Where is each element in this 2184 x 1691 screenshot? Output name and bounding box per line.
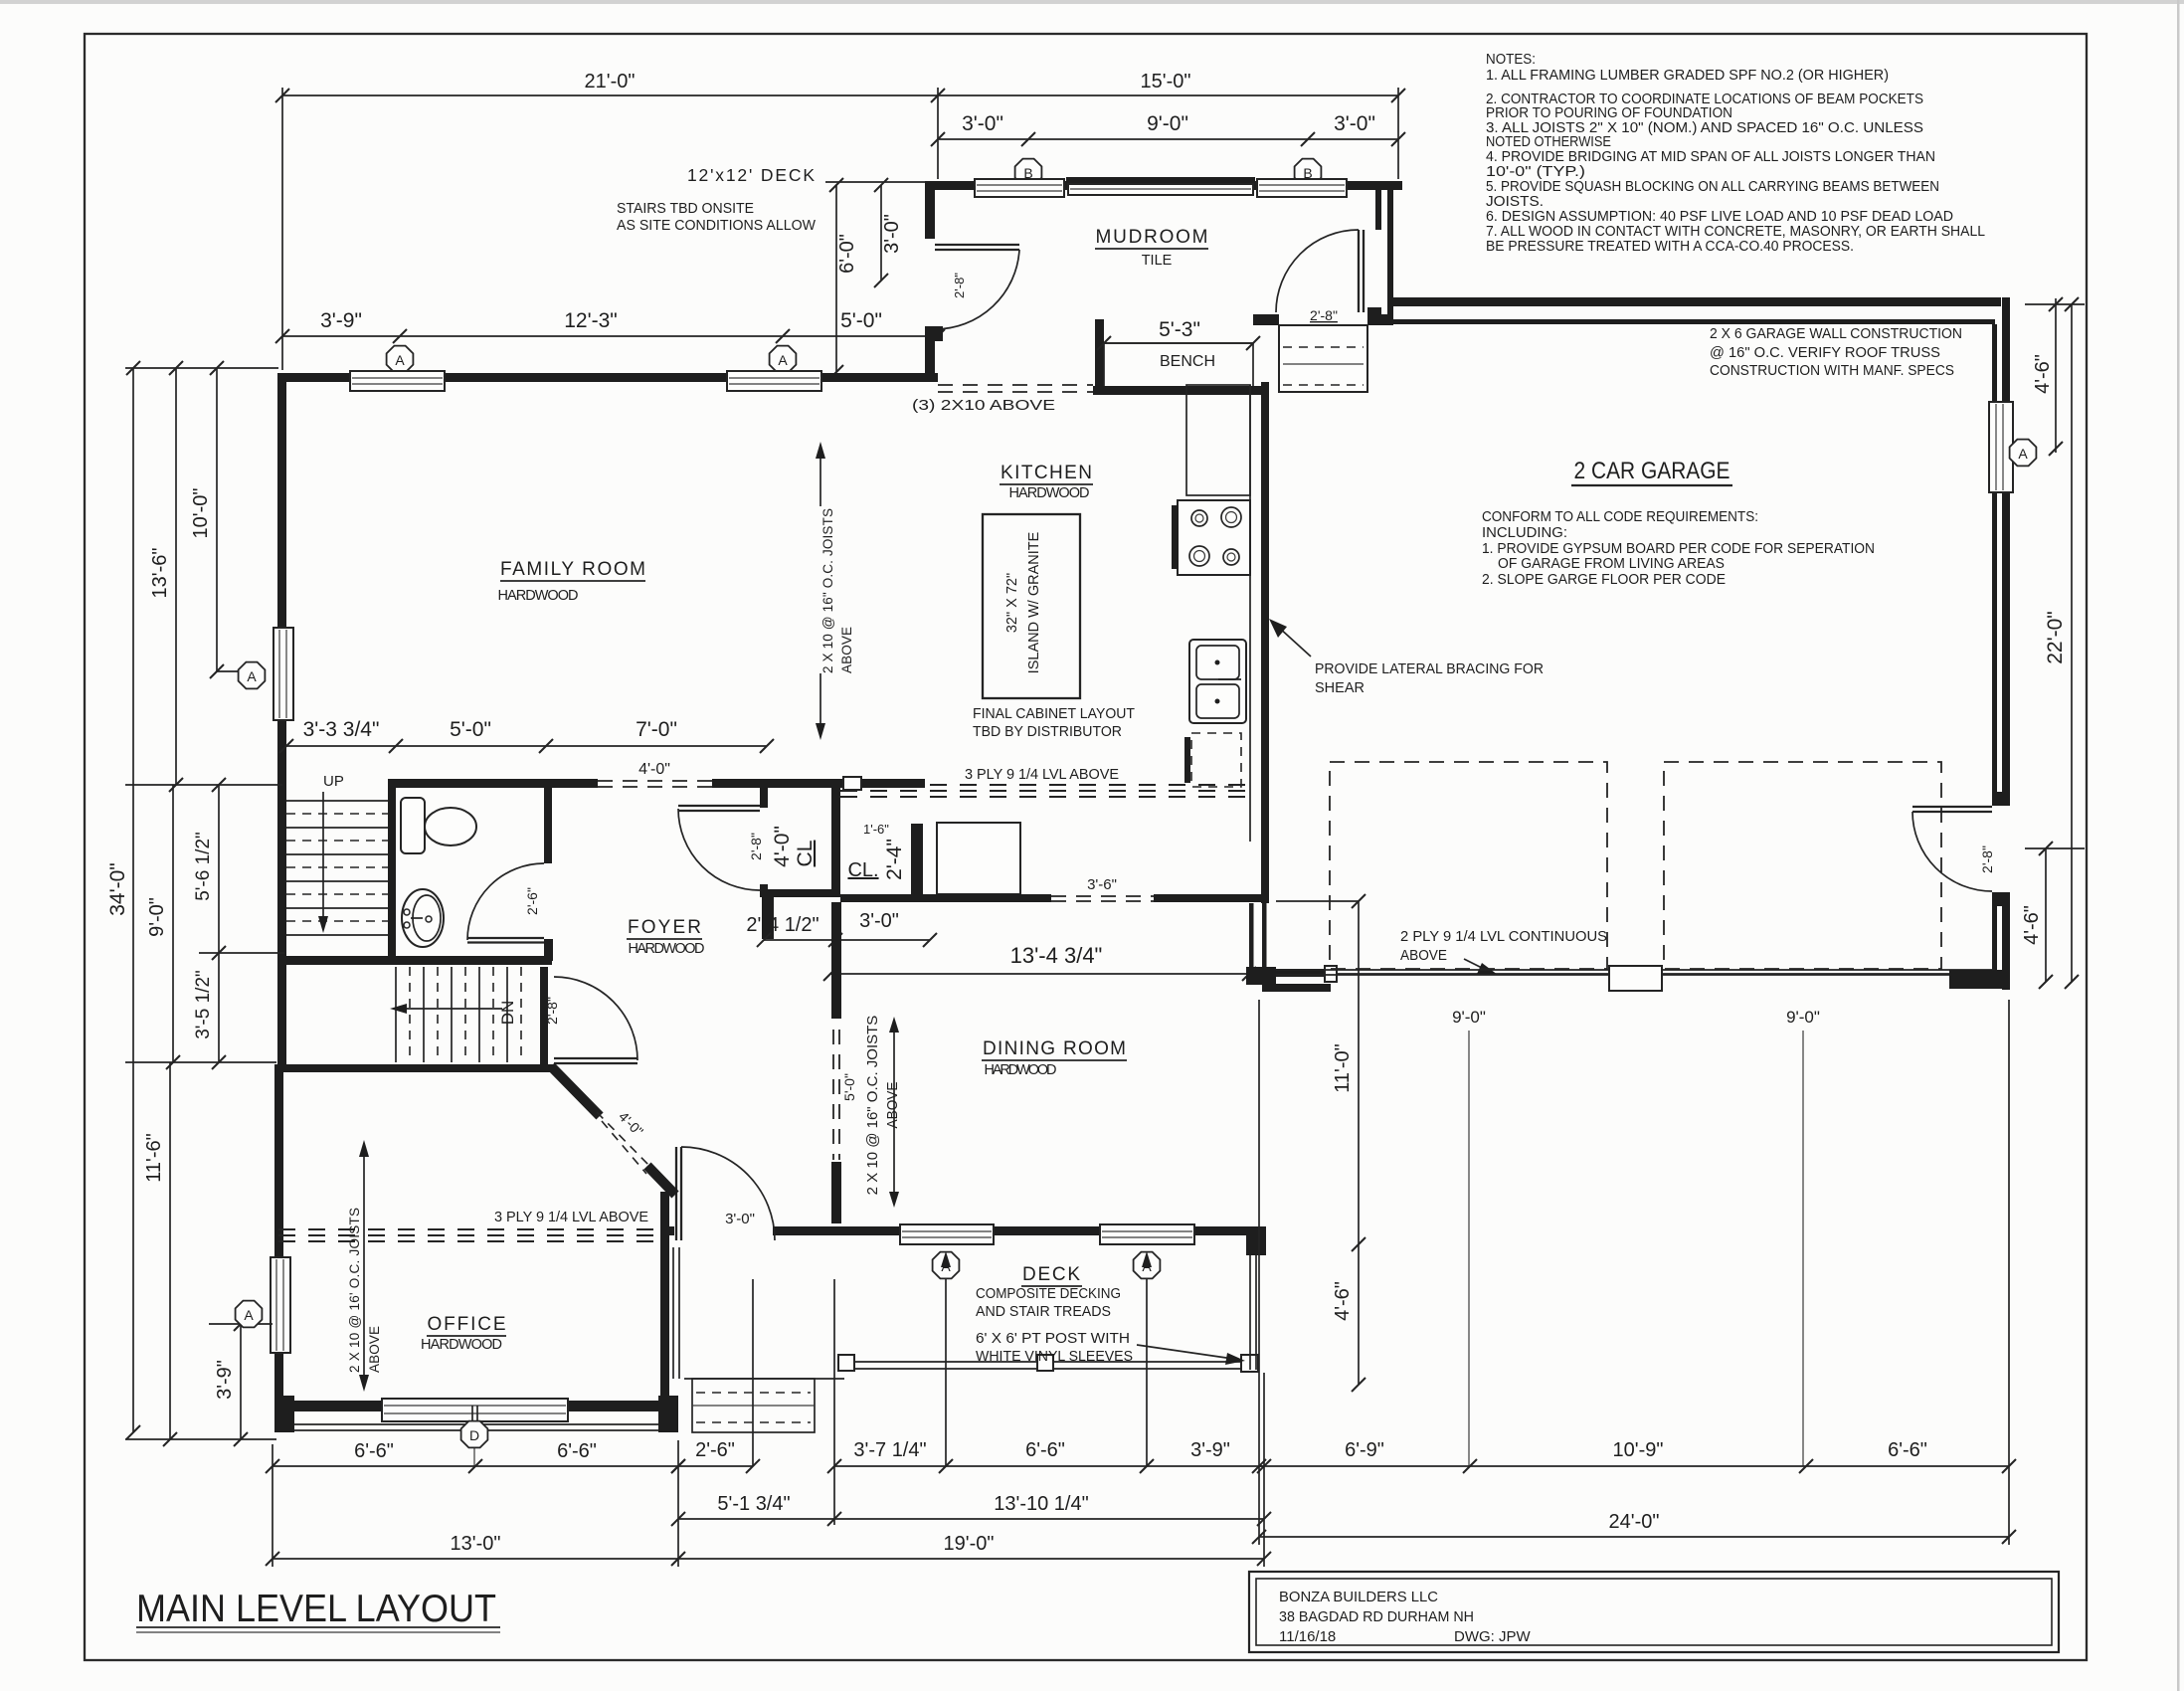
svg-text:13'-6": 13'-6" [149,548,171,599]
svg-text:OF GARAGE FROM LIVING AREAS: OF GARAGE FROM LIVING AREAS [1498,556,1725,572]
svg-text:3 PLY 9 1/4 LVL ABOVE: 3 PLY 9 1/4 LVL ABOVE [494,1210,648,1225]
svg-text:11'-0": 11'-0" [1332,1043,1354,1092]
svg-text:CONFORM TO ALL CODE REQUIREMEN: CONFORM TO ALL CODE REQUIREMENTS: [1482,509,1758,525]
svg-text:DINING ROOM: DINING ROOM [983,1038,1126,1059]
svg-text:DWG: JPW: DWG: JPW [1454,1628,1531,1645]
svg-text:KITCHEN: KITCHEN [1001,463,1092,483]
svg-text:9'-0": 9'-0" [1147,112,1188,135]
svg-text:A: A [2018,446,2028,462]
svg-text:10'-0" (TYP.): 10'-0" (TYP.) [1486,164,1585,180]
svg-text:A: A [778,352,788,368]
svg-text:TILE: TILE [1142,253,1173,269]
svg-text:HARDWOOD: HARDWOOD [1009,485,1090,501]
svg-text:32" X 72": 32" X 72" [1004,573,1020,633]
svg-text:BE PRESSURE TREATED WITH A CCA: BE PRESSURE TREATED WITH A CCA-CO.40 PRO… [1486,239,1854,255]
svg-text:BONZA BUILDERS LLC: BONZA BUILDERS LLC [1279,1589,1438,1605]
svg-text:2'-8": 2'-8" [1310,307,1338,323]
svg-text:6' X 6' PT POST WITH: 6' X 6' PT POST WITH [976,1331,1130,1347]
svg-text:5'-0": 5'-0" [841,1073,857,1101]
svg-text:AND STAIR TREADS: AND STAIR TREADS [976,1304,1111,1320]
svg-text:BENCH: BENCH [1160,353,1215,370]
svg-text:3'-9": 3'-9" [214,1360,236,1400]
svg-text:4'-0": 4'-0" [771,826,794,867]
svg-text:24'-0": 24'-0" [1609,1511,1660,1533]
svg-text:3 PLY 9 1/4 LVL ABOVE: 3 PLY 9 1/4 LVL ABOVE [965,767,1119,783]
svg-text:A: A [247,668,257,684]
svg-text:21'-0": 21'-0" [585,71,636,93]
svg-text:INCLUDING:: INCLUDING: [1482,525,1567,541]
svg-text:7. ALL WOOD IN CONTACT WITH CO: 7. ALL WOOD IN CONTACT WITH CONCRETE, MA… [1486,224,1985,240]
svg-text:ABOVE: ABOVE [839,627,854,673]
svg-text:34'-0": 34'-0" [106,862,129,916]
svg-text:2'-6": 2'-6" [524,887,540,915]
svg-text:2'-8": 2'-8" [1979,845,1995,873]
svg-text:OFFICE: OFFICE [428,1314,506,1335]
svg-text:WHITE VINYL SLEEVES: WHITE VINYL SLEEVES [976,1349,1133,1365]
svg-text:2 X 6 GARAGE WALL CONSTRUCTION: 2 X 6 GARAGE WALL CONSTRUCTION [1710,326,1962,342]
svg-text:@ 16" O.C. VERIFY ROOF TRUSS: @ 16" O.C. VERIFY ROOF TRUSS [1710,345,1940,361]
svg-text:12'x12' DECK: 12'x12' DECK [687,165,815,185]
svg-text:6'-9": 6'-9" [1345,1439,1384,1461]
svg-text:2'-4": 2'-4" [883,839,906,880]
svg-text:2 X 10 @ 16' O.C. JOISTS: 2 X 10 @ 16' O.C. JOISTS [347,1208,362,1373]
svg-text:5'-6 1/2": 5'-6 1/2" [193,832,214,901]
svg-text:2'-8": 2'-8" [748,833,764,860]
svg-text:ABOVE: ABOVE [884,1082,901,1129]
svg-text:11/16/18: 11/16/18 [1279,1628,1336,1645]
svg-text:HARDWOOD: HARDWOOD [985,1062,1057,1078]
svg-text:22'-0": 22'-0" [2044,611,2067,664]
svg-text:5'-3": 5'-3" [1159,318,1200,341]
svg-text:TBD BY DISTRIBUTOR: TBD BY DISTRIBUTOR [973,724,1122,740]
svg-text:3'-6": 3'-6" [1087,876,1117,893]
svg-text:A: A [395,352,405,368]
svg-text:9'-0": 9'-0" [146,897,168,937]
svg-text:ABOVE: ABOVE [367,1326,382,1373]
svg-text:2 CAR GARAGE: 2 CAR GARAGE [1574,458,1730,484]
svg-text:6'-0": 6'-0" [836,234,858,274]
svg-text:2. SLOPE GARGE FLOOR PER CODE: 2. SLOPE GARGE FLOOR PER CODE [1482,572,1726,588]
svg-text:A: A [244,1307,254,1323]
svg-text:3'-0": 3'-0" [962,112,1003,135]
svg-text:DECK: DECK [1022,1264,1080,1285]
svg-text:FINAL CABINET LAYOUT: FINAL CABINET LAYOUT [973,706,1135,722]
svg-text:MAIN LEVEL LAYOUT: MAIN LEVEL LAYOUT [136,1588,496,1630]
svg-text:4'-6": 4'-6" [2032,354,2054,394]
svg-text:DN: DN [498,1001,517,1026]
svg-text:1. PROVIDE GYPSUM BOARD PER CO: 1. PROVIDE GYPSUM BOARD PER CODE FOR SEP… [1482,541,1875,557]
svg-text:3'-0": 3'-0" [1334,112,1375,135]
svg-text:5. PROVIDE SQUASH BLOCKING ON: 5. PROVIDE SQUASH BLOCKING ON ALL CARRYI… [1486,179,1939,195]
svg-text:CL: CL [794,841,817,867]
svg-text:2 PLY 9 1/4 LVL CONTINUOUS: 2 PLY 9 1/4 LVL CONTINUOUS [1400,929,1607,945]
svg-text:6. DESIGN ASSUMPTION: 40 PSF: 6. DESIGN ASSUMPTION: 40 PSF LIVE LOAD A… [1486,209,1953,225]
svg-text:3'-0": 3'-0" [725,1211,755,1227]
svg-text:5'-0": 5'-0" [450,718,491,741]
svg-text:ABOVE: ABOVE [1400,948,1447,964]
svg-text:11'-6": 11'-6" [143,1133,165,1182]
svg-text:3'-9": 3'-9" [320,309,362,332]
svg-text:3'-3 3/4": 3'-3 3/4" [303,718,380,741]
svg-text:15'-0": 15'-0" [1141,71,1191,93]
svg-text:3'-0": 3'-0" [859,910,899,932]
svg-text:D: D [469,1427,479,1443]
svg-text:CONSTRUCTION WITH MANF. SPECS: CONSTRUCTION WITH MANF. SPECS [1710,363,1954,379]
svg-text:13'-0": 13'-0" [451,1533,501,1555]
svg-text:7'-0": 7'-0" [636,718,677,741]
svg-text:2'-4 1/2": 2'-4 1/2" [746,914,819,936]
svg-text:2'-8": 2'-8" [952,273,967,298]
svg-text:5'-1 3/4": 5'-1 3/4" [717,1493,790,1515]
svg-text:9'-0": 9'-0" [1452,1008,1486,1027]
svg-text:5'-0": 5'-0" [840,309,882,332]
svg-text:NOTES:: NOTES: [1486,52,1536,68]
svg-text:9'-0": 9'-0" [1786,1008,1820,1027]
svg-text:38 BAGDAD RD DURHAM NH: 38 BAGDAD RD DURHAM NH [1279,1608,1474,1625]
svg-text:6'-6": 6'-6" [354,1440,394,1462]
svg-text:2 X 10 @ 16" O.C. JOISTS: 2 X 10 @ 16" O.C. JOISTS [864,1016,881,1196]
svg-text:SHEAR: SHEAR [1315,680,1365,696]
svg-text:10'-9": 10'-9" [1613,1439,1664,1461]
svg-text:12'-3": 12'-3" [564,309,618,332]
svg-text:HARDWOOD: HARDWOOD [421,1337,502,1353]
svg-text:HARDWOOD: HARDWOOD [629,941,705,957]
svg-text:4. PROVIDE BRIDGING AT MID SPA: 4. PROVIDE BRIDGING AT MID SPAN OF ALL J… [1486,149,1935,165]
svg-text:2'-6": 2'-6" [695,1439,735,1461]
svg-text:CL.: CL. [847,859,878,881]
svg-text:2'-8": 2'-8" [544,997,560,1025]
svg-text:3'-9": 3'-9" [1190,1439,1230,1461]
svg-text:10'-0": 10'-0" [190,488,212,539]
svg-text:6'-6": 6'-6" [1025,1439,1065,1461]
svg-text:ISLAND W/ GRANITE: ISLAND W/ GRANITE [1026,531,1042,673]
svg-text:JOISTS.: JOISTS. [1486,194,1544,210]
svg-text:STAIRS TBD ONSITE: STAIRS TBD ONSITE [617,201,754,217]
svg-text:FAMILY ROOM: FAMILY ROOM [500,559,645,580]
svg-text:3'-7 1/4": 3'-7 1/4" [853,1439,926,1461]
svg-text:PROVIDE LATERAL BRACING FOR: PROVIDE LATERAL BRACING FOR [1315,661,1544,677]
svg-text:3'-0": 3'-0" [881,214,903,254]
svg-text:3'-5 1/2": 3'-5 1/2" [193,970,214,1039]
svg-text:UP: UP [323,773,344,790]
svg-text:FOYER: FOYER [628,917,701,938]
svg-text:1. ALL FRAMING LUMBER GRADED S: 1. ALL FRAMING LUMBER GRADED SPF NO.2 (O… [1486,68,1889,84]
svg-text:COMPOSITE DECKING: COMPOSITE DECKING [976,1286,1121,1302]
svg-text:13'-4 3/4": 13'-4 3/4" [1010,943,1103,968]
svg-text:2 X 10 @ 16" O.C. JOISTS: 2 X 10 @ 16" O.C. JOISTS [820,508,835,673]
svg-text:AS SITE CONDITIONS ALLOW: AS SITE CONDITIONS ALLOW [617,218,816,234]
svg-text:4'-6": 4'-6" [2021,905,2043,945]
svg-text:6'-6": 6'-6" [1888,1439,1927,1461]
svg-text:NOTED OTHERWISE: NOTED OTHERWISE [1486,134,1611,150]
svg-text:PRIOR TO POURING OF FOUNDATION: PRIOR TO POURING OF FOUNDATION [1486,105,1732,121]
svg-text:1'-6": 1'-6" [863,822,889,837]
svg-text:6'-6": 6'-6" [557,1440,597,1462]
svg-text:4'-0": 4'-0" [638,761,670,778]
svg-text:19'-0": 19'-0" [944,1533,995,1555]
svg-text:HARDWOOD: HARDWOOD [498,588,579,604]
svg-text:4'-6": 4'-6" [1332,1281,1354,1321]
svg-text:(3) 2X10 ABOVE: (3) 2X10 ABOVE [912,398,1055,414]
svg-text:13'-10 1/4": 13'-10 1/4" [994,1493,1088,1515]
